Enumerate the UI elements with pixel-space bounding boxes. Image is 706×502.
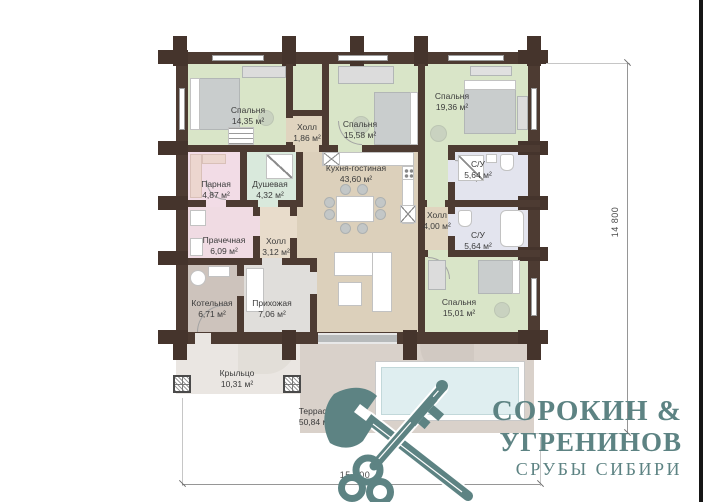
- dresser: [517, 96, 528, 130]
- log-end: [158, 141, 188, 155]
- washing-machine: [190, 210, 206, 226]
- wardrobe: [242, 66, 286, 78]
- room-name: С/У: [471, 159, 485, 169]
- logo-line-1: СОРОКИН &: [467, 395, 682, 428]
- stove: [402, 166, 414, 180]
- chair: [375, 209, 386, 220]
- room-name: Холл: [266, 236, 286, 246]
- door-opening: [310, 272, 317, 294]
- wardrobe: [428, 260, 446, 290]
- toilet: [500, 154, 514, 171]
- room-name: Парная: [201, 179, 231, 189]
- room-name: Холл: [297, 122, 317, 132]
- chair: [340, 223, 351, 234]
- sliding-door: [318, 333, 397, 344]
- room-area: 43,60 м²: [340, 174, 372, 184]
- room-name: Прихожая: [252, 298, 291, 308]
- floor-plan-page: Спальня14,35 м² Холл1,86 м² Спальня15,58…: [0, 0, 706, 502]
- window: [448, 55, 504, 61]
- rug: [494, 302, 510, 318]
- door-opening: [295, 145, 319, 152]
- page-edge-line: [699, 0, 703, 502]
- logo-tagline: СРУБЫ СИБИРИ: [467, 459, 682, 480]
- room-area: 10,31 м²: [221, 379, 253, 389]
- dim-extension-line: [182, 398, 183, 486]
- door-opening: [338, 145, 362, 152]
- room-name: С/У: [471, 230, 485, 240]
- desk: [338, 66, 394, 84]
- chair: [324, 197, 335, 208]
- sofa: [372, 252, 392, 312]
- door-opening: [206, 200, 226, 207]
- room-name: Спальня: [442, 297, 476, 307]
- sauna-bench: [202, 154, 226, 164]
- room-name: Крыльцо: [220, 368, 255, 378]
- room-area: 7,06 м²: [258, 309, 286, 319]
- chair: [340, 184, 351, 195]
- room-bedroom-3-ext: [425, 145, 448, 200]
- door-opening: [237, 276, 244, 296]
- rug: [430, 125, 447, 142]
- bathtub: [500, 210, 524, 247]
- room-label-boiler: Котельная6,71 м²: [191, 298, 232, 320]
- room-label-entry: Прихожая7,06 м²: [252, 298, 291, 320]
- door-opening: [428, 250, 448, 257]
- room-name: Спальня: [231, 105, 265, 115]
- room-label-bedroom-4: Спальня15,01 м²: [442, 297, 476, 319]
- wardrobe: [470, 66, 512, 76]
- room-label-hall-4: Холл4,00 м²: [423, 210, 451, 232]
- wall-int: [418, 64, 425, 205]
- room-area: 15,58 м²: [344, 130, 376, 140]
- window: [212, 55, 264, 61]
- dim-height-label: 14 800: [610, 192, 620, 252]
- log-end: [414, 36, 428, 66]
- room-name: Кухня-гостиная: [326, 163, 386, 173]
- room-label-bedroom-3: Спальня19,36 м²: [435, 91, 469, 113]
- bed-pillows: [190, 78, 200, 130]
- coffee-table: [338, 282, 362, 306]
- bed-pillows: [464, 80, 516, 90]
- room-label-kitchen: Кухня-гостиная43,60 м²: [326, 163, 386, 185]
- door-opening: [286, 118, 293, 142]
- room-area: 19,36 м²: [436, 102, 468, 112]
- log-end: [158, 196, 188, 210]
- door-opening: [448, 160, 455, 182]
- log-end: [518, 50, 548, 64]
- log-end: [158, 50, 188, 64]
- log-end: [403, 330, 417, 360]
- room-area: 3,12 м²: [262, 247, 290, 257]
- room-area: 1,86 м²: [293, 133, 321, 143]
- room-name: Холл: [427, 210, 447, 220]
- log-end: [158, 330, 188, 344]
- log-end: [282, 36, 296, 66]
- room-label-bathroom-top: С/У5,64 м²: [464, 159, 492, 181]
- wall-int: [322, 64, 329, 152]
- room-name: Спальня: [343, 119, 377, 129]
- window: [179, 88, 185, 130]
- wall-int: [296, 152, 303, 200]
- room-label-shower: Душевая4,32 м²: [252, 179, 288, 201]
- door-opening: [253, 216, 260, 236]
- room-label-porch: Крыльцо10,31 м²: [220, 368, 255, 390]
- chair: [357, 184, 368, 195]
- wall-int: [293, 110, 329, 116]
- room-area: 5,64 м²: [464, 170, 492, 180]
- dim-line-vertical: [627, 63, 628, 433]
- attic-ladder: [228, 127, 254, 145]
- log-end: [518, 330, 548, 344]
- room-label-sauna: Парная4,87 м²: [201, 179, 231, 201]
- room-area: 5,64 м²: [464, 241, 492, 251]
- room-area: 4,32 м²: [256, 190, 284, 200]
- window: [531, 88, 537, 130]
- chair: [324, 209, 335, 220]
- laundry-shelf: [190, 238, 203, 256]
- room-area: 14,35 м²: [232, 116, 264, 126]
- room-label-bathroom-bottom: С/У5,64 м²: [464, 230, 492, 252]
- room-name: Душевая: [252, 179, 288, 189]
- dining-table: [336, 196, 374, 222]
- wall-int: [240, 152, 247, 200]
- toilet: [458, 210, 472, 227]
- logo-line-2: УГРЕНИНОВ: [467, 427, 682, 458]
- shower-tray: [266, 154, 293, 179]
- door-opening: [427, 200, 445, 207]
- log-end: [350, 36, 364, 66]
- room-area: 6,09 м²: [210, 246, 238, 256]
- room-label-hall-1: Холл1,86 м²: [293, 122, 321, 144]
- wall-int: [188, 145, 287, 152]
- sauna-bench: [190, 154, 202, 198]
- window: [531, 278, 537, 316]
- wall-int: [188, 258, 317, 265]
- room-label-bedroom-2: Спальня15,58 м²: [343, 119, 377, 141]
- door-opening: [195, 333, 211, 344]
- door-opening: [290, 216, 297, 238]
- wall-int: [448, 145, 540, 152]
- bed-pillows: [410, 92, 418, 145]
- water-tank: [208, 266, 230, 277]
- dim-extension-line: [546, 63, 630, 64]
- chair: [375, 197, 386, 208]
- bed-pillows: [512, 260, 520, 294]
- chair: [357, 223, 368, 234]
- window: [338, 55, 388, 61]
- porch-column-icon: [173, 375, 191, 393]
- log-end: [158, 251, 188, 265]
- porch-column-icon: [283, 375, 301, 393]
- boiler: [190, 270, 206, 286]
- room-name: Прачечная: [203, 235, 246, 245]
- room-name: Спальня: [435, 91, 469, 101]
- room-label-laundry: Прачечная6,09 м²: [203, 235, 246, 257]
- room-area: 4,00 м²: [423, 221, 451, 231]
- closet-strip: [293, 64, 322, 110]
- room-area: 4,87 м²: [202, 190, 230, 200]
- fridge: [400, 205, 416, 223]
- log-end: [282, 330, 296, 360]
- room-label-hall-3: Холл3,12 м²: [262, 236, 290, 258]
- room-area: 6,71 м²: [198, 309, 226, 319]
- room-name: Котельная: [191, 298, 232, 308]
- door-opening: [258, 200, 278, 207]
- room-label-bedroom-1: Спальня14,35 м²: [231, 105, 265, 127]
- room-area: 15,01 м²: [443, 308, 475, 318]
- door-opening: [262, 258, 282, 265]
